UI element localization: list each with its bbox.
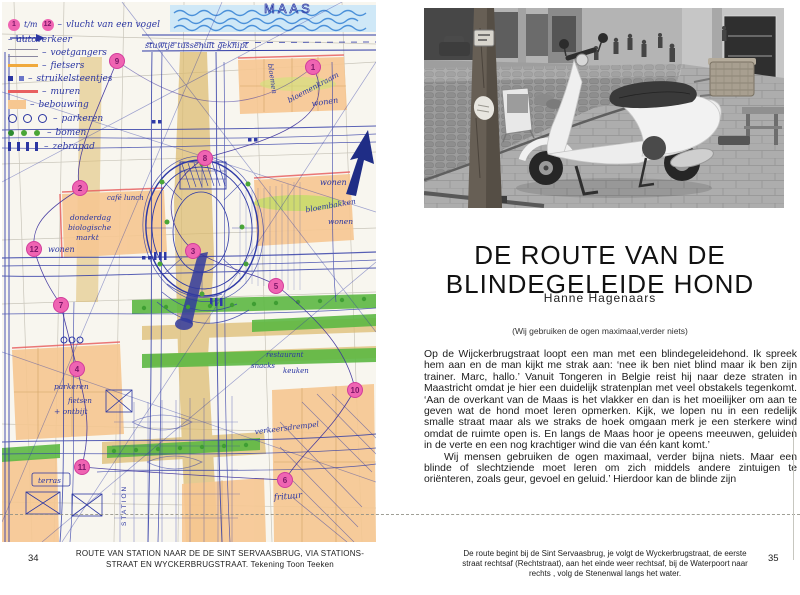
north-arrow [346, 130, 374, 196]
photo-svg [424, 8, 784, 208]
legend-row-cyclists: – fietsers [8, 59, 84, 72]
legend-dash: – [44, 142, 49, 152]
hand-drawn-map: MAAS stuwtje tussenuit geknipt [2, 2, 376, 542]
legend-dash: – [30, 100, 35, 110]
map-label: wonen [320, 178, 347, 187]
legend-row-flight: 1 t/m 12 – vlucht van een vogel [8, 18, 160, 31]
legend-label: bebouwing [39, 100, 89, 110]
map-label: biologische [68, 223, 112, 232]
legend-label: struikelsteentjes [37, 74, 113, 84]
route-number: 3 [191, 247, 196, 256]
legend-dash: – [58, 20, 63, 30]
zebra-icon [35, 142, 38, 151]
map-note: stuwtje tussenuit geknipt [145, 41, 249, 50]
map-label: café lunch [107, 194, 144, 202]
walls-icon [8, 90, 38, 93]
legend-label: voetgangers [51, 48, 107, 58]
legend-label: vlucht van een vogel [66, 20, 160, 30]
stone-icon [8, 76, 13, 81]
parking-icon [23, 114, 32, 123]
legend-row-walls: – muren [8, 85, 80, 98]
stone-icon [19, 76, 24, 81]
body-paragraph-1: Op de Wijckerbrugstraat loopt een man me… [424, 349, 797, 452]
map-caption: ROUTE VAN STATION NAAR DE DE SINT SERVAA… [70, 549, 370, 570]
map-label: snacks [251, 362, 275, 370]
page-right: DE ROUTE VAN DE BLINDEGELEIDE HOND Hanne… [400, 0, 800, 595]
article-body: Op de Wijckerbrugstraat loopt een man me… [424, 349, 797, 486]
body-paragraph-2: Wij mensen gebruiken de ogen maximaal, v… [424, 452, 797, 486]
route-number: 5 [274, 282, 279, 291]
route-number: 1 [311, 63, 316, 72]
route-footnote: De route begint bij de Sint Servaasbrug,… [440, 549, 770, 579]
legend-dash: – [28, 74, 33, 84]
maas-label: MAAS [264, 2, 313, 16]
map-label: parkeren [54, 382, 89, 391]
street-photo [424, 8, 784, 208]
legend-dash: – [47, 128, 52, 138]
fold-dashed-line [0, 514, 800, 515]
zebra-icon [26, 142, 29, 151]
legend-dash: – [53, 114, 58, 124]
legend-label: zebrapad [53, 142, 95, 152]
zebra-icon [8, 142, 11, 151]
tree-icon [8, 130, 14, 136]
caption-line2: STRAAT EN WYCKERBRUGSTRAAT. Tekening Too… [70, 560, 370, 571]
legend-row-trees: – bomen [8, 126, 86, 139]
parking-icon [38, 114, 47, 123]
page-edge-line [793, 420, 794, 560]
article-subtitle: (Wij gebruiken de ogen maximaal,verder n… [414, 326, 786, 336]
route-number: 12 [30, 245, 39, 254]
map-label: donderdag [70, 213, 111, 222]
route-number: 8 [203, 154, 208, 163]
footnote-line2: straat rechtsaf (Rechtstraat), aan het e… [440, 559, 770, 569]
map-label-station: STATION [121, 485, 128, 526]
tree-icon [21, 130, 27, 136]
legend-range-sep: t/m [24, 20, 38, 29]
footnote-line3: rechts , volg de Stenenwal langs het wat… [440, 569, 770, 579]
cyclists-icon [8, 64, 38, 67]
legend-dash: – [42, 87, 47, 97]
legend-row-zebra: – zebrapad [8, 140, 95, 153]
tree-icon [34, 130, 40, 136]
route-number: 10 [351, 386, 360, 395]
legend-label: parkeren [62, 114, 104, 124]
legend-circle-start: 1 [8, 19, 20, 31]
route-number: 4 [75, 365, 80, 374]
map-label: wonen [328, 217, 353, 226]
legend-row-car: – autoverkeer [8, 33, 72, 46]
legend-dash: – [42, 48, 47, 58]
route-number: 7 [59, 301, 64, 310]
page-left: MAAS stuwtje tussenuit geknipt [0, 0, 400, 595]
page-number-left: 34 [28, 553, 39, 564]
legend-dash: – [42, 61, 47, 71]
zebra-icon [17, 142, 20, 151]
title-line1: DE ROUTE VAN DE [474, 240, 725, 270]
legend-row-buildings: – bebouwing [8, 98, 89, 111]
map-label: wonen [48, 245, 75, 254]
caption-line1: ROUTE VAN STATION NAAR DE DE SINT SERVAA… [70, 549, 370, 560]
map-label: terras [38, 476, 61, 485]
page-number-right: 35 [768, 553, 779, 564]
map-label: restaurant [266, 351, 304, 359]
legend-label: muren [51, 87, 81, 97]
route-number: 9 [115, 57, 120, 66]
footnote-line1: De route begint bij de Sint Servaasbrug,… [440, 549, 770, 559]
route-number: 6 [283, 476, 288, 485]
legend-circle-end: 12 [42, 19, 54, 31]
maas-river: MAAS [170, 2, 376, 32]
map-label: markt [76, 233, 100, 242]
manhole-grate [718, 136, 750, 145]
route-number: 11 [78, 463, 87, 472]
route-number: 2 [78, 184, 83, 193]
legend-row-pedestrians: – voetgangers [8, 46, 107, 59]
map-label: + ontbijt [54, 407, 89, 416]
parking-icon [8, 114, 17, 123]
pedestrians-icon [8, 49, 38, 57]
map-label: fietsen [67, 397, 92, 405]
legend-label: bomen [56, 128, 87, 138]
car-traffic-icon [8, 33, 46, 43]
legend-row-stones: – struikelsteentjes [8, 72, 112, 85]
article-author: Hanne Hagenaars [414, 291, 786, 305]
legend-label: fietsers [51, 61, 85, 71]
map-label: keuken [283, 367, 309, 375]
buildings-icon [8, 100, 26, 109]
legend-row-parking: – parkeren [8, 112, 103, 125]
